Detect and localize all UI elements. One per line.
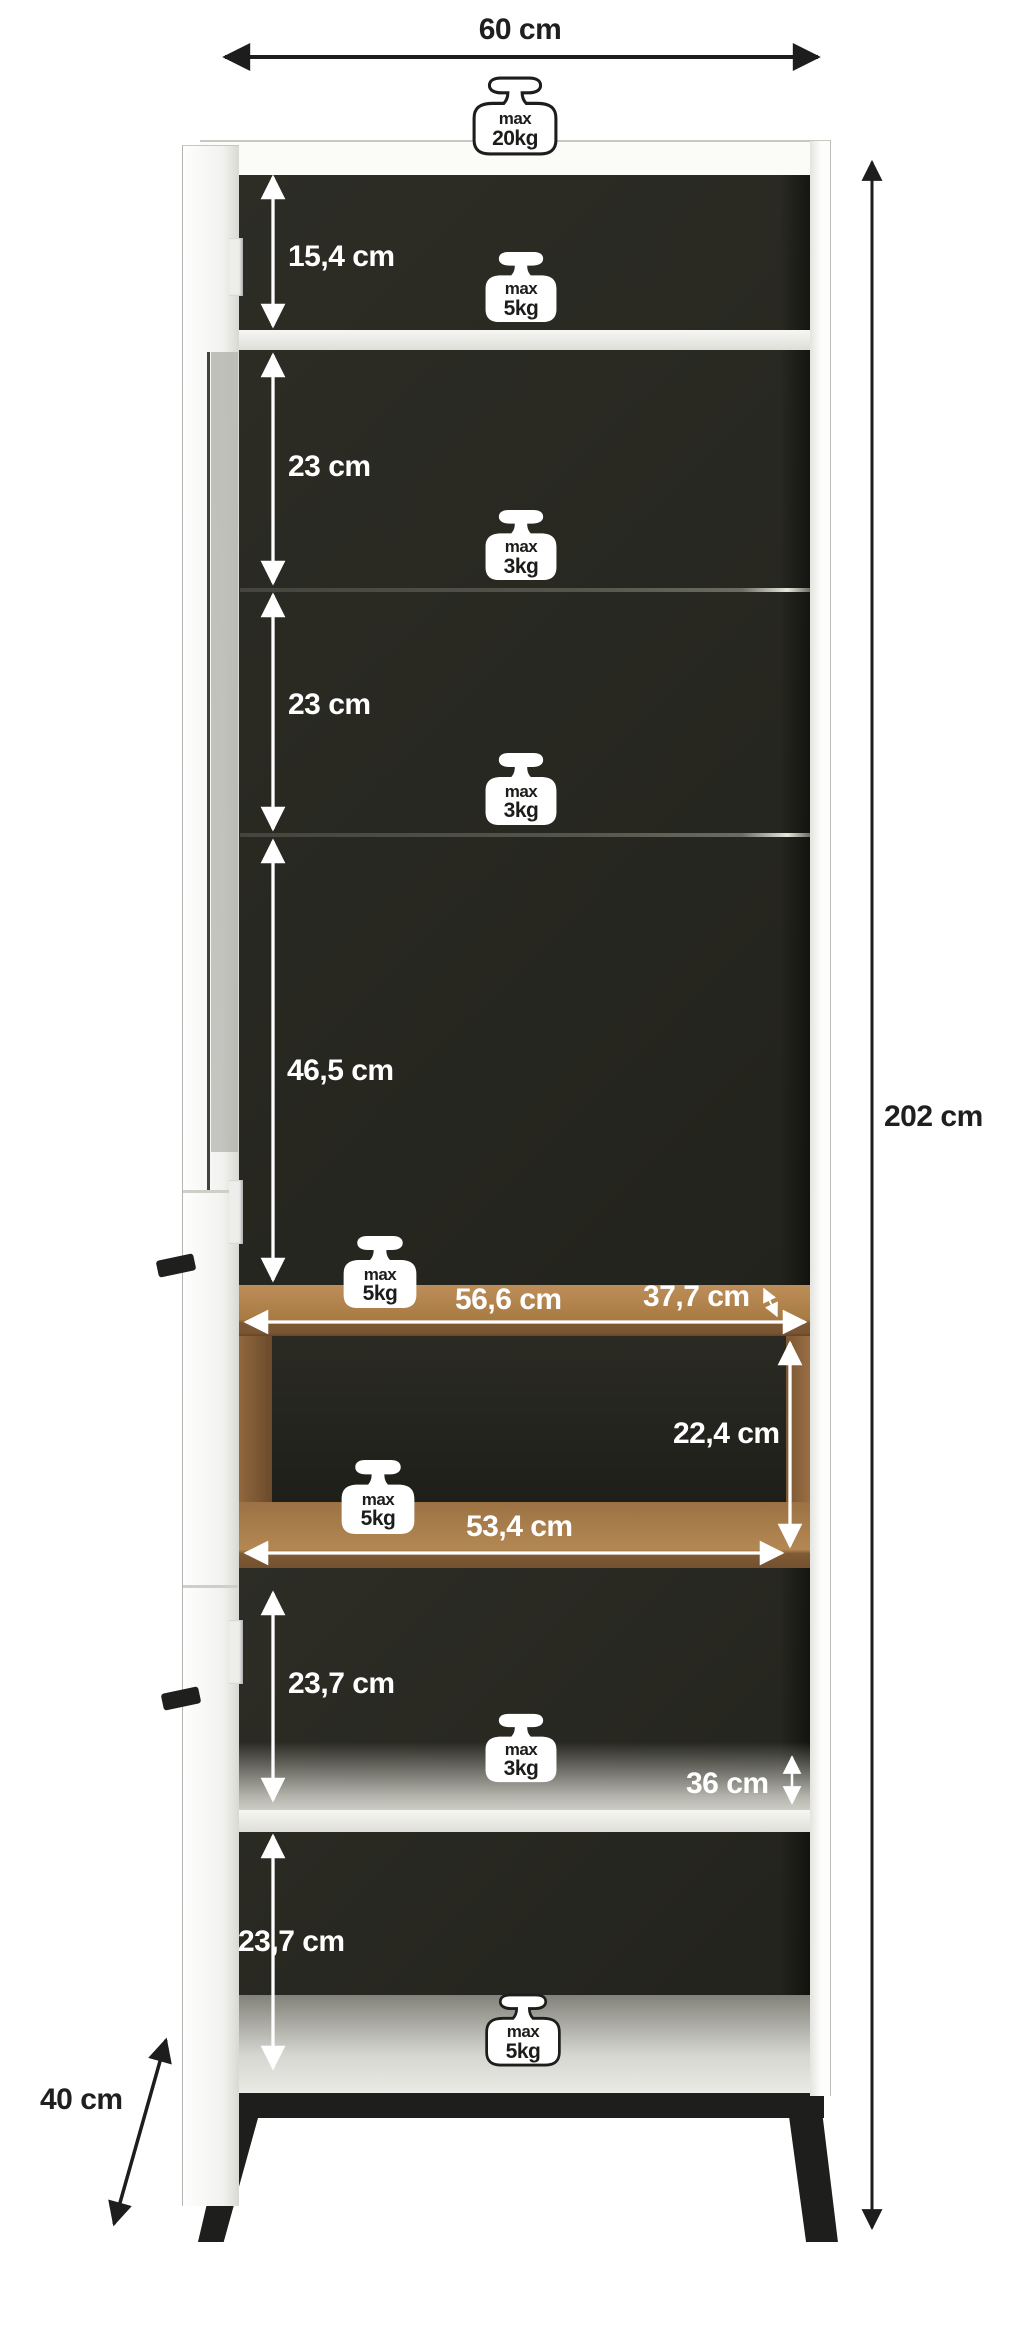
height-label: 202 cm — [884, 1100, 983, 1134]
badge-weight-value: 5kg — [363, 1283, 398, 1304]
niche-height-label: 22,4 cm — [673, 1417, 780, 1451]
badge-weight-value: 5kg — [504, 298, 539, 319]
weight-limit-badge-niche: max5kg — [338, 1458, 418, 1536]
width-label: 60 cm — [440, 13, 600, 47]
badge-max-label: max — [505, 280, 538, 297]
glass-shelf-1 — [240, 588, 810, 592]
shelf-depth-label: 37,7 cm — [643, 1280, 750, 1314]
section1-height-label: 15,4 cm — [288, 240, 395, 274]
badge-weight-value: 3kg — [504, 556, 539, 577]
weight-limit-badge-shelf4: max5kg — [340, 1234, 420, 1310]
badge-max-label: max — [362, 1491, 395, 1508]
weight-limit-badge-bottom: max5kg — [483, 1993, 563, 2067]
badge-max-label: max — [505, 1741, 538, 1758]
furniture-dimension-diagram: max20kg max5kg max3kg max3kg max5kg max5… — [0, 0, 1024, 2339]
glass-door-reflection — [211, 352, 238, 1152]
fixed-shelf-lower — [238, 1810, 810, 1832]
lower-shelf-depth-label: 36 cm — [686, 1767, 769, 1801]
hinge-top — [229, 238, 243, 296]
cabinet-right-frame — [810, 141, 831, 2096]
weight-limit-badge-shelf1: max5kg — [482, 250, 560, 324]
badge-max-label: max — [364, 1266, 397, 1283]
badge-max-label: max — [505, 783, 538, 800]
badge-max-label: max — [507, 2023, 540, 2040]
shelf-width-label: 56,6 cm — [455, 1283, 562, 1317]
glass-door-edge-line — [207, 352, 210, 1190]
metal-leg-right — [784, 2118, 842, 2242]
section3-height-label: 23 cm — [288, 688, 371, 722]
weight-limit-badge-shelf2: max3kg — [482, 508, 560, 582]
door-seam-lower — [183, 1585, 238, 1588]
depth-arrow — [114, 2040, 166, 2224]
section5-height-label: 23,7 cm — [288, 1667, 395, 1701]
hinge-middle — [229, 1180, 243, 1244]
section2-height-label: 23 cm — [288, 450, 371, 484]
section6-height-label: 23,7 cm — [238, 1925, 345, 1959]
metal-base-bar — [224, 2093, 824, 2118]
depth-label: 40 cm — [40, 2083, 123, 2117]
badge-weight-value: 5kg — [361, 1508, 396, 1529]
weight-limit-badge-top: max20kg — [470, 76, 560, 156]
weight-limit-badge-shelf3: max3kg — [482, 751, 560, 827]
section4-height-label: 46,5 cm — [287, 1054, 394, 1088]
glass-shelf-2 — [240, 833, 810, 837]
badge-weight-value: 3kg — [504, 1758, 539, 1779]
weight-limit-badge-shelf5: max3kg — [482, 1712, 560, 1784]
badge-weight-value: 3kg — [504, 800, 539, 821]
hinge-bottom — [229, 1620, 243, 1684]
fixed-shelf-top — [238, 330, 810, 350]
badge-max-label: max — [499, 110, 532, 127]
badge-weight-value: 5kg — [506, 2041, 541, 2062]
niche-width-label: 53,4 cm — [466, 1510, 573, 1544]
badge-max-label: max — [505, 538, 538, 555]
badge-weight-value: 20kg — [492, 128, 538, 149]
